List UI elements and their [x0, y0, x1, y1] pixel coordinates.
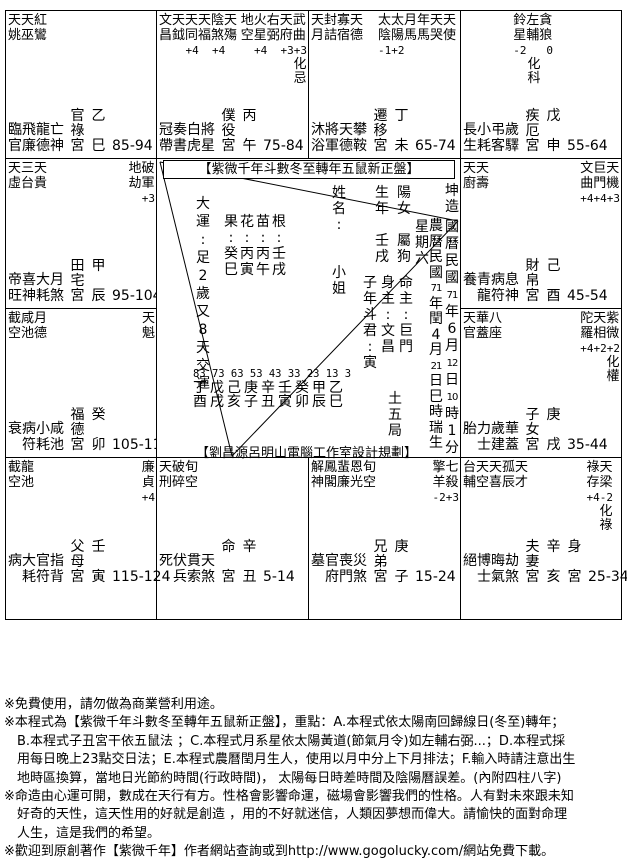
transformation-marker: 化 忌 — [293, 58, 307, 86]
age-range: 5-14 — [263, 569, 295, 585]
palace-cell-xu: 天華八官蓋座陀天紫羅相微+4+2+2化 權胎力歲華 士建蓋子 女 宮庚 戌35-… — [461, 309, 621, 458]
stem-branch: 己 酉 — [546, 259, 561, 304]
stem-branch: 辛 亥 — [546, 540, 561, 585]
footer-note: ※免費使用，請勿做為商業營利用途。 — [4, 696, 625, 714]
main-star-group: 文巨天曲門機+4+4+3 — [580, 161, 620, 205]
palace-name: 兄 弟 宮 — [373, 540, 388, 585]
transformation-marker: 化 科 — [527, 58, 541, 86]
palace-footer: 絕博晦劫 士氣煞夫 妻 宮辛 亥身 宮25-34 — [463, 540, 627, 585]
star-name-line: 羅相微 — [580, 326, 619, 341]
star-name-line: 貞 — [142, 475, 155, 490]
star-name-line: 存梁 — [587, 475, 613, 490]
minor-star-group: 解鳳蜚恩旬神閣廉光空 — [311, 460, 376, 490]
palace-footer: 胎力歲華 士建蓋子 女 宮庚 戌35-44 — [463, 408, 608, 453]
palace-footer: 冠奏白將 帶書虎星僕 役 宮丙 午75-84 — [159, 109, 304, 154]
cycle-stars: 絕博晦劫 士氣煞 — [463, 553, 519, 585]
palace-footer: 死伏貫天 兵索煞命 宮辛 丑5-14 — [159, 540, 295, 585]
main-star-group: 地破劫軍 +3 — [129, 161, 156, 205]
stem-branch: 壬 寅 — [91, 540, 106, 585]
cycle-stars: 養青病息 龍符神 — [463, 272, 519, 304]
credit-line: 【劉昌源呂明山電腦工作室設計規劃】 — [157, 442, 456, 461]
palace-name: 田 宅 宮 — [70, 259, 85, 304]
age-range: 85-94 — [112, 138, 153, 154]
center-col-body-lord: 身主:文昌 — [380, 275, 396, 355]
decade-branches: 酉戌亥子丑寅卯辰巳 — [193, 395, 363, 409]
age-range: 65-74 — [415, 138, 456, 154]
center-col-pillar-guo: 果:癸巳 — [223, 214, 239, 278]
main-star-group: 天魁 — [142, 311, 155, 341]
star-name-line: 天 — [142, 311, 155, 326]
brightness-values: +3 — [129, 193, 156, 205]
star-name-line: 空池德 — [8, 326, 47, 341]
minor-star-group: 截咸月空池德 — [8, 311, 47, 341]
star-name-line: 截咸月 — [8, 311, 47, 326]
cycle-stars: 墓官喪災 府門煞 — [311, 553, 367, 585]
decade-stems: 丁戊己庚辛壬癸甲乙 — [193, 381, 363, 395]
palace-footer: 帝喜大月 旺神耗煞田 宅 宮甲 辰95-104 — [8, 259, 162, 304]
center-col-life-lord: 命主:巨門 — [398, 275, 414, 355]
star-name-line: 天破旬 — [159, 460, 198, 475]
stem-branch: 甲 辰 — [91, 259, 106, 304]
footer-note: ※命造由心運可開，數成在天行有方。性格會影響命運，磁場會影響我們的性格。人有對未… — [4, 788, 625, 806]
minor-star-group: 天三天虛台貴 — [8, 161, 47, 191]
palace-footer: 長小弔歲 生耗客驛疾 厄 宮戊 申55-64 — [463, 109, 608, 154]
stem-branch: 癸 卯 — [91, 408, 106, 453]
stem-branch: 丙 午 — [242, 109, 257, 154]
star-name-line: 陰陽馬馬哭使 — [378, 28, 456, 43]
palace-footer: 沐將天攀 浴軍德鞍遷 移 宮丁 未65-74 — [311, 109, 456, 154]
star-name-line: 月詰宿德 — [311, 28, 363, 43]
palace-footer: 臨飛龍亡 官廉德神官 祿 宮乙 巳85-94 — [8, 109, 153, 154]
age-range: 15-24 — [415, 569, 456, 585]
main-star-group: 擎七羊殺-2+3 — [433, 460, 460, 504]
center-panel: 【紫微千年斗數冬至轉年五鼠新正盤】大運:足2歲又8天交運果:癸巳花:丙寅苗:丙午… — [157, 159, 461, 458]
palace-name: 官 祿 宮 — [70, 109, 85, 154]
age-range: 45-54 — [567, 288, 608, 304]
star-name-line: 廚壽 — [463, 176, 489, 191]
star-name-line: 天三天 — [8, 161, 47, 176]
transformation-marker: 化 權 — [606, 356, 620, 384]
chart-grid: 天天紅姚巫鸞臨飛龍亡 官廉德神官 祿 宮乙 巳85-94文天天天陰天昌鉞同福煞殤… — [5, 10, 622, 620]
center-col-pillar-miao: 苗:丙午 — [255, 214, 271, 278]
brightness-values: -1+2 — [378, 45, 405, 57]
palace-name: 子 女 宮 — [525, 408, 540, 453]
main-star-group: 廉貞+4 — [142, 460, 155, 504]
palace-name: 命 宮 — [221, 540, 236, 585]
footer-note: B.本程式子丑宮干依五鼠法 ；C.本程式月系星依太陽黃道(節氣月令)如左輔右弼.… — [4, 733, 625, 751]
star-name-line: 羊殺 — [433, 475, 459, 490]
palace-cell-you: 天天廚壽文巨天曲門機+4+4+3養青病息 龍符神財 帛 宮己 酉45-54 — [461, 159, 621, 309]
center-col-kun: 坤造 — [444, 183, 460, 215]
body-palace-marker: 身 宮 — [567, 540, 582, 585]
palace-cell-shen: 鈴左貪星輔狼-2 0化 科長小弔歲 生耗客驛疾 厄 宮戊 申55-64 — [461, 11, 621, 159]
palace-footer: 衰病小咸 符耗池福 德 宮癸 卯105-114 — [8, 408, 171, 453]
center-col-doujun: 子年斗君:寅 — [362, 275, 378, 371]
palace-footer: 墓官喪災 府門煞兄 弟 宮庚 子15-24 — [311, 540, 456, 585]
center-col-birth-year: 生年壬戌 — [374, 185, 390, 265]
age-range: 75-84 — [263, 138, 304, 154]
cycle-stars: 臨飛龍亡 官廉德神 — [8, 122, 64, 154]
cycle-stars: 病大官指 耗符背 — [8, 553, 64, 585]
star-name-line: 天天 — [463, 161, 489, 176]
star-name-line: 地破 — [129, 161, 155, 176]
stem-branch: 庚 戌 — [546, 408, 561, 453]
palace-cell-chou: 天破旬刑碎空死伏貫天 兵索煞命 宮辛 丑5-14 — [157, 458, 309, 619]
main-star-group: 鈴左貪星輔狼-2 0化 科 — [513, 13, 553, 86]
decade-limits-table: 83 73 63 53 43 33 23 13 3丁戊己庚辛壬癸甲乙酉戌亥子丑寅… — [193, 368, 363, 409]
cycle-stars: 衰病小咸 符耗池 — [8, 421, 64, 453]
star-name-line: 空星弼府曲 — [241, 28, 306, 43]
star-name-line: 天天紅 — [8, 13, 47, 28]
palace-name: 僕 役 宮 — [221, 109, 236, 154]
stem-branch: 丁 未 — [394, 109, 409, 154]
age-range: 25-34 — [588, 569, 627, 585]
star-name-line: 刑碎空 — [159, 475, 198, 490]
star-name-line: 空池 — [8, 475, 34, 490]
star-name-line: 文巨天 — [580, 161, 619, 176]
center-col-pillar-hua: 花:丙寅 — [239, 214, 255, 278]
age-range: 115-124 — [112, 569, 171, 585]
palace-footer: 養青病息 龍符神財 帛 宮己 酉45-54 — [463, 259, 608, 304]
chart-title: 【紫微千年斗數冬至轉年五鼠新正盤】 — [163, 160, 455, 179]
cycle-stars: 長小弔歲 生耗客驛 — [463, 122, 519, 154]
palace-name: 遷 移 宮 — [373, 109, 388, 154]
star-name-line: 魁 — [142, 326, 155, 341]
palace-name: 父 母 宮 — [70, 540, 85, 585]
star-name-line: 廉 — [142, 460, 155, 475]
star-name-line: 陀天紫 — [580, 311, 619, 326]
brightness-values: -2 0 — [513, 45, 553, 57]
age-range: 55-64 — [567, 138, 608, 154]
transformation-marker: 化 祿 — [599, 505, 613, 533]
minor-star-group: 截龍空池 — [8, 460, 34, 490]
minor-star-group: 文天天天陰天昌鉞同福煞殤 +4 +4 — [159, 13, 237, 57]
palace-name: 福 德 宮 — [70, 408, 85, 453]
footer-note: 地時區換算，當地日光節約時間(行政時間)， 太陽每日時差時間及陰陽曆誤差。(內附… — [4, 770, 625, 788]
center-col-dayun: 大運:足2歲又8天交運 — [195, 195, 211, 393]
footer-note: 好奇的天性，這天性用的好就是創造 ，用的不好就迷信，人類因夢想而偉大。請愉快的面… — [4, 806, 625, 824]
palace-cell-zi: 解鳳蜚恩旬神閣廉光空擎七羊殺-2+3墓官喪災 府門煞兄 弟 宮庚 子15-24 — [309, 458, 461, 619]
palace-cell-yin: 截龍空池廉貞+4病大官指 耗符背父 母 宮壬 寅115-124 — [6, 458, 157, 619]
palace-name: 疾 厄 宮 — [525, 109, 540, 154]
cycle-stars: 沐將天攀 浴軍德鞍 — [311, 122, 367, 154]
center-col-solar: 國曆民國71年6月12日10時1分 — [444, 219, 460, 457]
footer-note: ※歡迎到原創著作【紫微千年】作者網站查詢或到http://www.gogoluc… — [4, 843, 625, 861]
stem-branch: 戊 申 — [546, 109, 561, 154]
cycle-stars: 冠奏白將 帶書虎星 — [159, 122, 215, 154]
age-range: 35-44 — [567, 437, 608, 453]
main-star-group: 地火右天武空星弼府曲 +4 +3+3化 忌 — [241, 13, 307, 86]
center-col-bureau: 土五局 — [387, 391, 403, 439]
star-name-line: 昌鉞同福煞殤 — [159, 28, 237, 43]
age-range: 95-104 — [112, 288, 162, 304]
star-name-line: 輔空喜辰才 — [463, 475, 528, 490]
footer-note: 人生，這是我們的希望。 — [4, 825, 625, 843]
brightness-values: +4 +4 — [159, 45, 225, 57]
minor-star-group: 天天廚壽 — [463, 161, 489, 191]
brightness-values: +4+4+3 — [580, 193, 620, 205]
center-col-lunar: 農曆民國71年閏4月21日巳時瑞生 — [428, 219, 444, 452]
cycle-stars: 帝喜大月 旺神耗煞 — [8, 272, 64, 304]
star-name-line: 台天天孤天 — [463, 460, 528, 475]
star-name-line: 擎七 — [433, 460, 459, 475]
star-name-line: 星輔狼 — [513, 28, 552, 43]
star-name-line: 鈴左貪 — [513, 13, 552, 28]
footer-notes: ※免費使用，請勿做為商業營利用途。※本程式為【紫微千年斗數冬至轉年五鼠新正盤】，… — [4, 696, 625, 862]
brightness-values: +4 +3+3 — [241, 45, 307, 57]
palace-cell-hai: 台天天孤天輔空喜辰才祿天存梁+4-2化 祿絕博晦劫 士氣煞夫 妻 宮辛 亥身 宮… — [461, 458, 621, 619]
star-name-line: 祿天 — [587, 460, 613, 475]
brightness-values: -2+3 — [433, 492, 460, 504]
minor-star-group: 台天天孤天輔空喜辰才 — [463, 460, 528, 490]
palace-cell-wu: 文天天天陰天昌鉞同福煞殤 +4 +4地火右天武空星弼府曲 +4 +3+3化 忌冠… — [157, 11, 309, 159]
minor-star-group: 天封寡天月詰宿德 — [311, 13, 363, 43]
stem-branch: 辛 丑 — [242, 540, 257, 585]
minor-star-group: 天華八官蓋座 — [463, 311, 502, 341]
brightness-values: +4+2+2 — [580, 343, 620, 355]
star-name-line: 天封寡天 — [311, 13, 363, 28]
star-name-line: 解鳳蜚恩旬 — [311, 460, 376, 475]
minor-star-group: 天破旬刑碎空 — [159, 460, 198, 490]
center-col-name: 姓名:小姐 — [331, 185, 347, 297]
main-star-group: 祿天存梁+4-2化 祿 — [587, 460, 614, 533]
main-star-group: 陀天紫羅相微+4+2+2化 權 — [580, 311, 620, 384]
palace-footer: 病大官指 耗符背父 母 宮壬 寅115-124 — [8, 540, 171, 585]
star-name-line: 文天天天陰天 — [159, 13, 237, 28]
stem-branch: 乙 巳 — [91, 109, 106, 154]
star-name-line: 太太月年天天 — [378, 13, 456, 28]
star-name-line: 曲門機 — [580, 176, 619, 191]
stem-branch: 庚 子 — [394, 540, 409, 585]
palace-cell-mao: 截咸月空池德天魁衰病小咸 符耗池福 德 宮癸 卯105-114 — [6, 309, 157, 458]
star-name-line: 劫軍 — [129, 176, 155, 191]
footer-note: 用每日晚上23點交日法；E.本程式農曆閏月生人，使用以月中分上下月排法；F.輸入… — [4, 751, 625, 769]
footer-note: ※本程式為【紫微千年斗數冬至轉年五鼠新正盤】，重點：A.本程式依太陽南回歸線日(… — [4, 714, 625, 732]
brightness-values: +4-2 — [587, 492, 614, 504]
center-col-pillar-gen: 根:壬戌 — [271, 214, 287, 278]
palace-cell-si: 天天紅姚巫鸞臨飛龍亡 官廉德神官 祿 宮乙 巳85-94 — [6, 11, 157, 159]
palace-name: 財 帛 宮 — [525, 259, 540, 304]
star-name-line: 地火右天武 — [241, 13, 306, 28]
main-star-group: 太太月年天天陰陽馬馬哭使-1+2 — [378, 13, 456, 57]
star-name-line: 官蓋座 — [463, 326, 502, 341]
star-name-line: 姚巫鸞 — [8, 28, 47, 43]
star-name-line: 虛台貴 — [8, 176, 47, 191]
palace-name: 夫 妻 宮 — [525, 540, 540, 585]
brightness-values: +4 — [142, 492, 155, 504]
center-col-gender: 陽女屬狗 — [396, 185, 412, 265]
star-name-line: 神閣廉光空 — [311, 475, 376, 490]
cycle-stars: 胎力歲華 士建蓋 — [463, 421, 519, 453]
palace-cell-chen: 天三天虛台貴地破劫軍 +3帝喜大月 旺神耗煞田 宅 宮甲 辰95-104 — [6, 159, 157, 309]
minor-star-group: 天天紅姚巫鸞 — [8, 13, 47, 43]
star-name-line: 天華八 — [463, 311, 502, 326]
star-name-line: 截龍 — [8, 460, 34, 475]
palace-cell-wei: 天封寡天月詰宿德太太月年天天陰陽馬馬哭使-1+2沐將天攀 浴軍德鞍遷 移 宮丁 … — [309, 11, 461, 159]
